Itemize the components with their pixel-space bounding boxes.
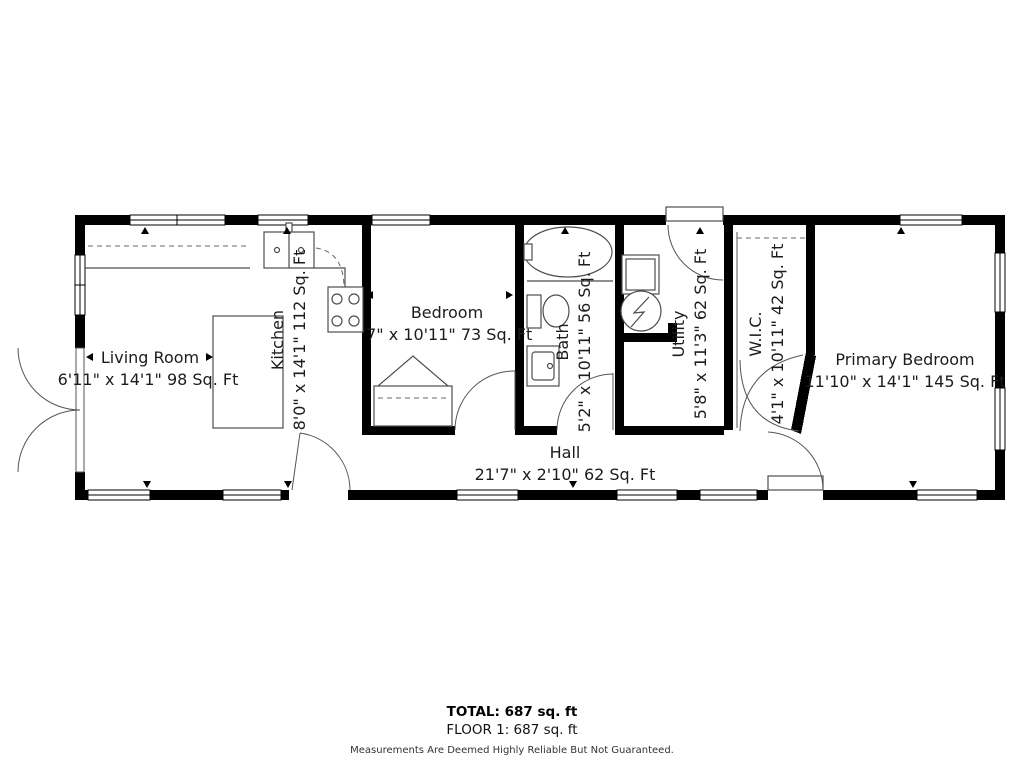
primary-bedroom-dims: 11'10" x 14'1" 145 Sq. Ft (804, 372, 1005, 391)
room-label-hall: Hall 21'7" x 2'10" 62 Sq. Ft (475, 443, 656, 484)
exterior-door (768, 432, 823, 500)
living-room-dims: 6'11" x 14'1" 98 Sq. Ft (58, 370, 239, 389)
french-doors (18, 348, 85, 472)
angled-wall (791, 352, 816, 434)
water-heater (621, 291, 661, 331)
window (995, 388, 1005, 450)
room-label-primary-bedroom: Primary Bedroom 11'10" x 14'1" 145 Sq. F… (804, 350, 1005, 391)
kitchen-name: Kitchen (268, 310, 287, 370)
kitchen-dims: 8'0" x 14'1" 112 Sq. Ft (290, 250, 309, 431)
utility-name: Utility (669, 310, 688, 357)
hall-dims: 21'7" x 2'10" 62 Sq. Ft (475, 465, 656, 484)
footer: TOTAL: 687 sq. ft FLOOR 1: 687 sq. ft Me… (350, 704, 674, 756)
window (130, 215, 225, 225)
window (900, 215, 962, 225)
window (700, 490, 757, 500)
utility-dims: 5'8" x 11'3" 62 Sq. Ft (691, 249, 710, 420)
stove (328, 287, 363, 332)
floor-plan: Living Room 6'11" x 14'1" 98 Sq. Ft Kitc… (0, 0, 1024, 768)
window (917, 490, 977, 500)
hall-name: Hall (550, 443, 581, 462)
window (223, 490, 281, 500)
total-area-label: TOTAL: 687 sq. ft (447, 704, 578, 720)
bath-dims: 5'2" x 10'11" 56 Sq. Ft (575, 252, 594, 433)
disclaimer-label: Measurements Are Deemed Highly Reliable … (350, 745, 674, 756)
closet-bifold-doors (374, 356, 452, 426)
window (995, 253, 1005, 312)
window (617, 490, 677, 500)
room-label-wic: W.I.C. 4'1" x 10'11" 42 Sq. Ft (746, 244, 787, 425)
room-label-bedroom: Bedroom '7" x 10'11" 73 Sq. Ft (362, 303, 533, 344)
bedroom-dims: '7" x 10'11" 73 Sq. Ft (362, 325, 533, 344)
floor-area-label: FLOOR 1: 687 sq. ft (446, 722, 577, 738)
interior-door (455, 371, 515, 430)
front-door (289, 433, 350, 500)
primary-bedroom-name: Primary Bedroom (835, 350, 974, 369)
window (258, 215, 308, 225)
washer (622, 255, 659, 294)
bathtub (524, 227, 613, 281)
room-label-bath: Bath 5'2" x 10'11" 56 Sq. Ft (553, 252, 594, 433)
window (372, 215, 430, 225)
window (75, 255, 85, 315)
wic-dims: 4'1" x 10'11" 42 Sq. Ft (768, 244, 787, 425)
toilet (527, 295, 569, 328)
window (457, 490, 518, 500)
living-room-name: Living Room (101, 348, 199, 367)
room-label-utility: Utility 5'8" x 11'3" 62 Sq. Ft (669, 249, 710, 420)
bath-name: Bath (553, 323, 572, 360)
bedroom-name: Bedroom (411, 303, 483, 322)
floor-plan-page: Living Room 6'11" x 14'1" 98 Sq. Ft Kitc… (0, 0, 1024, 768)
window (88, 490, 150, 500)
wic-name: W.I.C. (746, 311, 765, 356)
